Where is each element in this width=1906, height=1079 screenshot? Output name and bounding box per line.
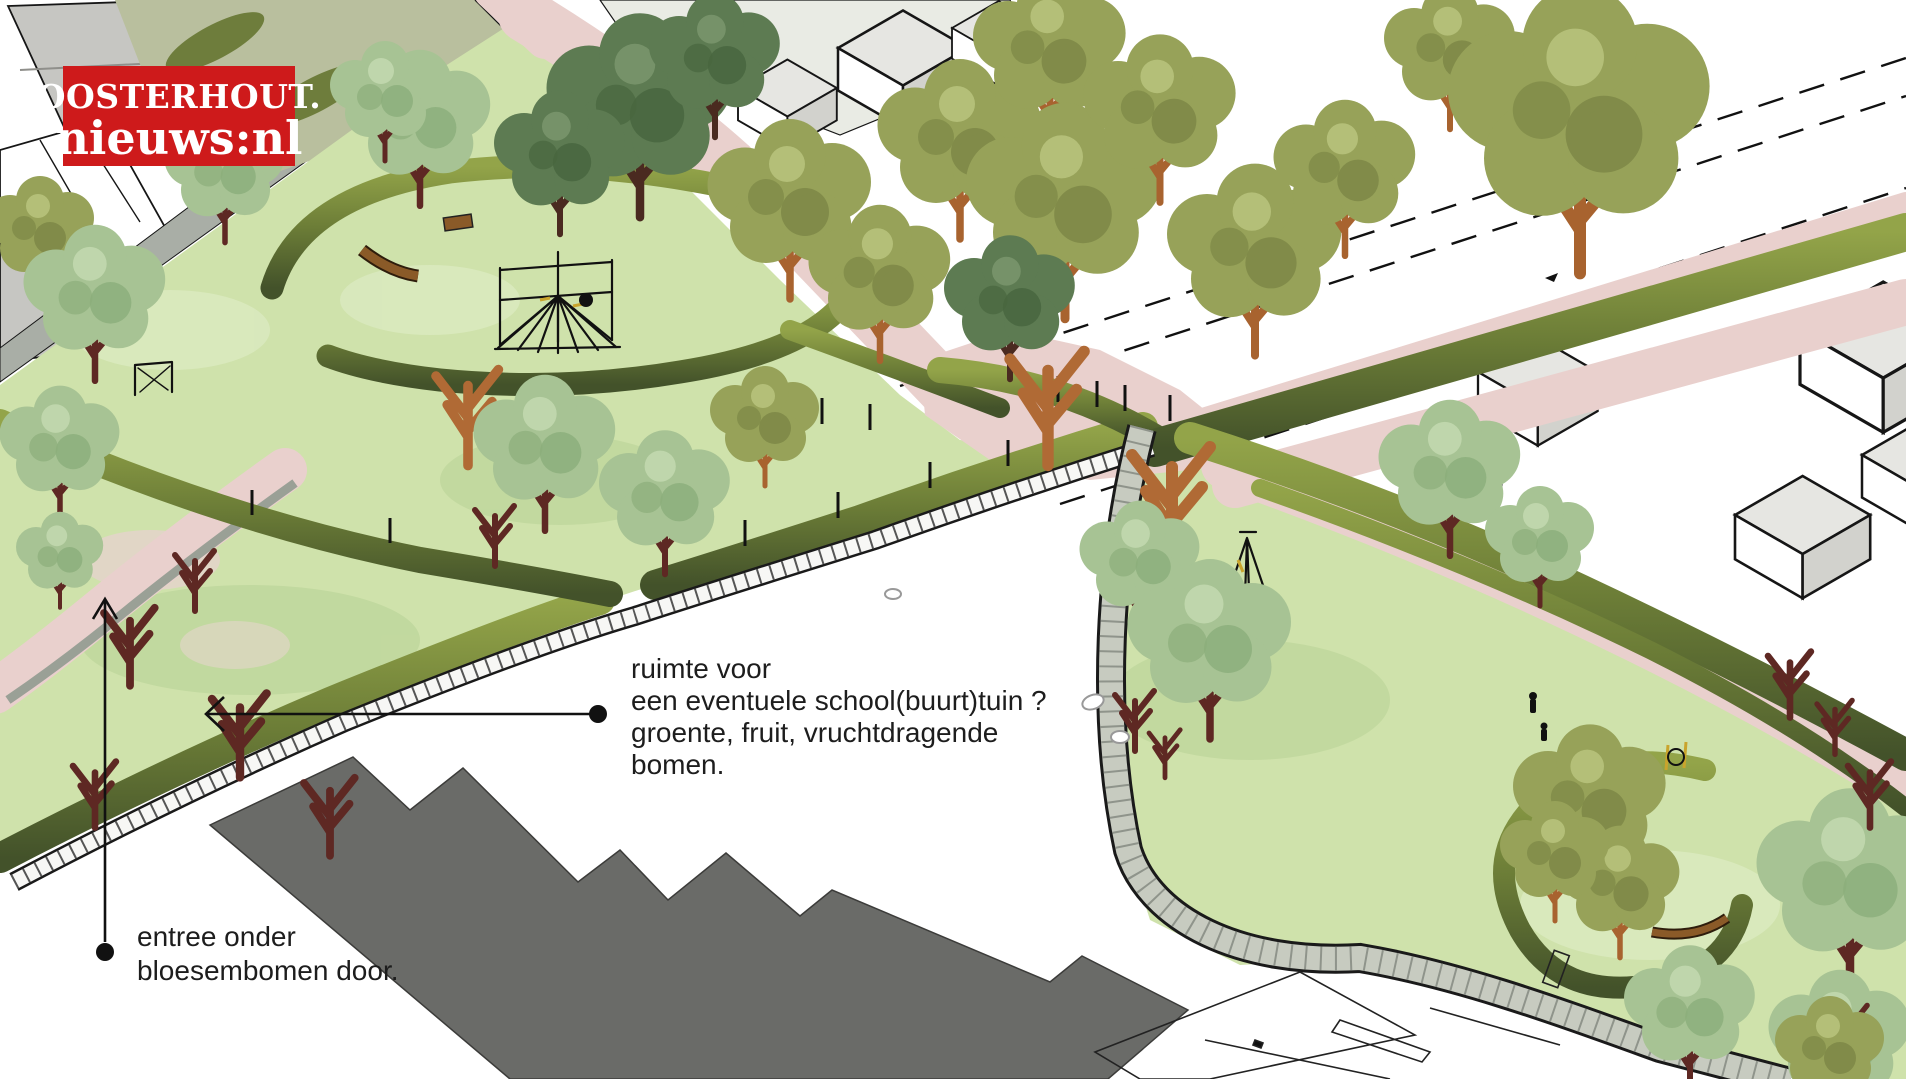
garden-note-line4: bomen. [631,749,724,780]
garden-note-line2: een eventuele school(buurt)tuin ? [631,685,1047,716]
garden-leader-dot-icon [589,705,607,723]
garden-note-line3: groente, fruit, vruchtdragende [631,717,998,748]
garden-note-line1: ruimte voor [631,653,771,684]
logo-oosterhout-nieuws: OOSTERHOUT. nieuws:nl [37,66,321,166]
park-plan-scene: OOSTERHOUT. nieuws:nl ruimte voor een ev… [0,0,1906,1079]
plan-illustration: OOSTERHOUT. nieuws:nl ruimte voor een ev… [0,0,1906,1079]
entrance-leader-dot-icon [96,943,114,961]
logo-line2: nieuws:nl [55,111,302,165]
entrance-note-line1: entree onder [137,921,296,952]
entrance-note-line2: bloesembomen door. [137,955,399,986]
